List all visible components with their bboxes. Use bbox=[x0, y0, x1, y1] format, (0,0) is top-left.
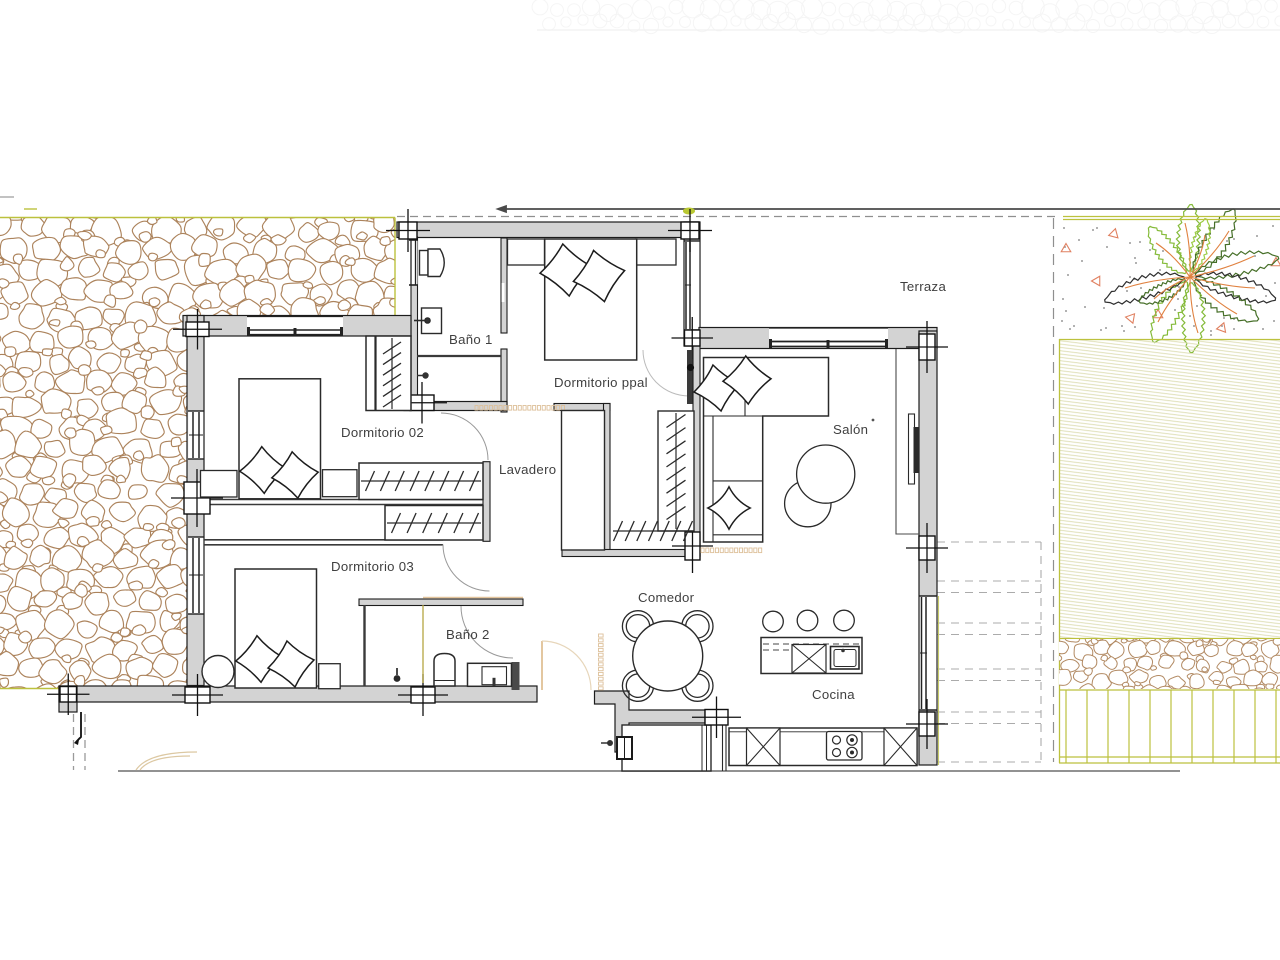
svg-text:Dormitorio ppal: Dormitorio ppal bbox=[554, 375, 648, 390]
svg-text:Dormitorio 03: Dormitorio 03 bbox=[331, 559, 414, 574]
svg-text:Baño 2: Baño 2 bbox=[446, 627, 490, 642]
svg-text:Lavadero: Lavadero bbox=[499, 462, 556, 477]
svg-text:Salón: Salón bbox=[833, 422, 868, 437]
svg-text:Cocina: Cocina bbox=[812, 687, 855, 702]
svg-text:Terraza: Terraza bbox=[900, 279, 946, 294]
svg-text:Dormitorio 02: Dormitorio 02 bbox=[341, 425, 424, 440]
svg-text:Comedor: Comedor bbox=[638, 590, 695, 605]
svg-text:Baño 1: Baño 1 bbox=[449, 332, 493, 347]
